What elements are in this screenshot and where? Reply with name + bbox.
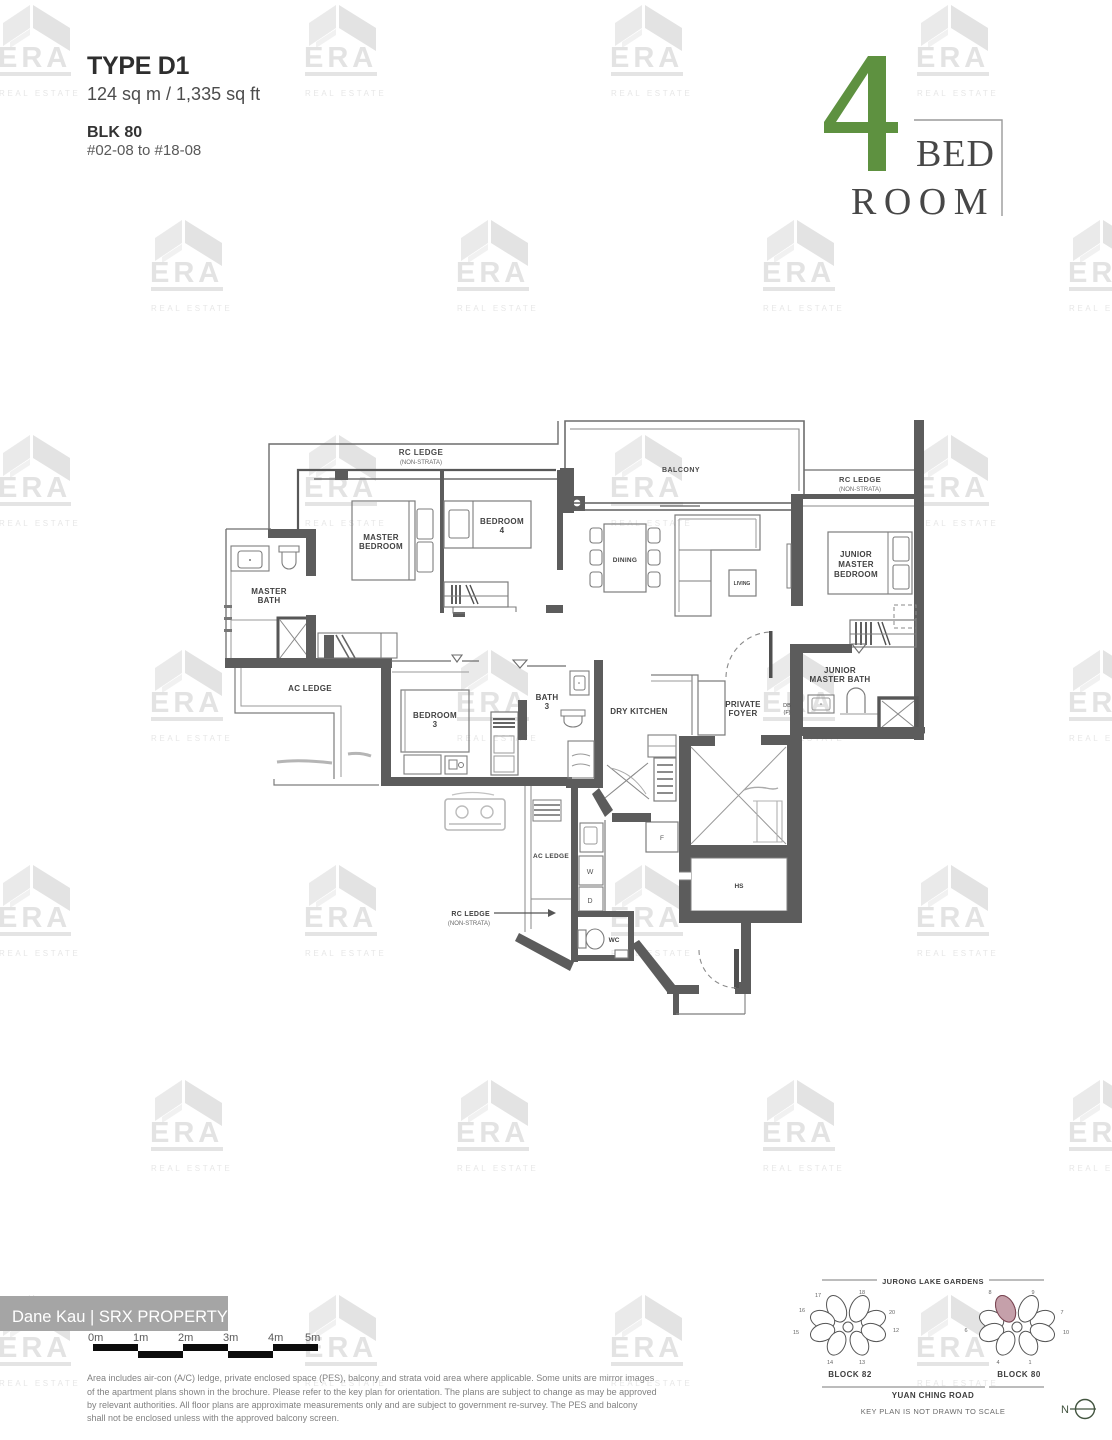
- svg-text:Area includes air-con (A/C) le: Area includes air-con (A/C) ledge, priva…: [87, 1373, 655, 1383]
- svg-text:BED: BED: [916, 133, 995, 175]
- svg-text:D: D: [587, 898, 592, 905]
- svg-text:124 sq m / 1,335 sq ft: 124 sq m / 1,335 sq ft: [87, 84, 260, 104]
- svg-text:ROOM: ROOM: [851, 181, 995, 223]
- svg-text:MASTER: MASTER: [251, 587, 287, 596]
- svg-text:(F): (F): [783, 710, 790, 716]
- svg-text:of the apartment plans shown i: of the apartment plans shown in the broc…: [87, 1387, 657, 1397]
- svg-text:HS: HS: [734, 883, 744, 890]
- svg-text:DINING: DINING: [613, 557, 638, 564]
- svg-text:KEY PLAN IS NOT DRAWN TO SCALE: KEY PLAN IS NOT DRAWN TO SCALE: [861, 1407, 1006, 1416]
- svg-text:JURONG LAKE GARDENS: JURONG LAKE GARDENS: [882, 1277, 984, 1286]
- svg-text:0m: 0m: [88, 1332, 103, 1344]
- svg-text:MASTER BATH: MASTER BATH: [810, 675, 871, 684]
- svg-text:BLOCK 82: BLOCK 82: [828, 1370, 872, 1379]
- svg-text:20: 20: [889, 1310, 895, 1316]
- svg-text:2m: 2m: [178, 1332, 193, 1344]
- svg-text:W: W: [587, 869, 594, 876]
- svg-text:DB: DB: [783, 703, 791, 709]
- svg-text:FOYER: FOYER: [728, 709, 757, 718]
- svg-text:1: 1: [1028, 1360, 1031, 1366]
- svg-text:by relevant authorities. All f: by relevant authorities. All floor plans…: [87, 1400, 638, 1410]
- svg-text:#02-08 to #18-08: #02-08 to #18-08: [87, 142, 201, 159]
- svg-text:PRIVATE: PRIVATE: [725, 700, 761, 709]
- svg-text:9: 9: [1031, 1290, 1034, 1296]
- svg-text:MASTER: MASTER: [838, 560, 874, 569]
- svg-text:1m: 1m: [133, 1332, 148, 1344]
- svg-text:3: 3: [545, 702, 550, 711]
- svg-text:RC LEDGE: RC LEDGE: [839, 475, 881, 484]
- svg-text:7: 7: [1060, 1310, 1063, 1316]
- svg-text:15: 15: [793, 1330, 799, 1336]
- svg-text:AC LEDGE: AC LEDGE: [533, 853, 569, 860]
- svg-text:BATH: BATH: [258, 596, 281, 605]
- svg-text:BALCONY: BALCONY: [662, 467, 700, 474]
- svg-text:N: N: [1061, 1404, 1069, 1416]
- svg-text:5m: 5m: [305, 1332, 320, 1344]
- svg-text:BEDROOM: BEDROOM: [413, 711, 457, 720]
- svg-text:(NON-STRATA): (NON-STRATA): [400, 460, 442, 466]
- svg-text:DRY KITCHEN: DRY KITCHEN: [610, 707, 668, 716]
- svg-text:12: 12: [893, 1328, 899, 1334]
- svg-text:LIVING: LIVING: [734, 581, 751, 587]
- svg-text:JUNIOR: JUNIOR: [824, 666, 856, 675]
- svg-text:BLOCK 80: BLOCK 80: [997, 1370, 1041, 1379]
- svg-text:BLK 80: BLK 80: [87, 124, 142, 141]
- svg-text:TYPE D1: TYPE D1: [87, 52, 189, 80]
- svg-text:18: 18: [859, 1290, 865, 1296]
- svg-text:17: 17: [815, 1293, 821, 1299]
- svg-text:RC LEDGE: RC LEDGE: [451, 911, 490, 918]
- svg-text:3m: 3m: [223, 1332, 238, 1344]
- svg-text:16: 16: [799, 1308, 805, 1314]
- svg-text:4: 4: [500, 526, 505, 535]
- svg-text:RC LEDGE: RC LEDGE: [399, 448, 444, 457]
- svg-text:WC: WC: [609, 937, 620, 944]
- svg-text:6: 6: [964, 1328, 967, 1334]
- svg-text:4: 4: [996, 1360, 999, 1366]
- svg-text:8: 8: [988, 1290, 991, 1296]
- svg-text:BEDROOM: BEDROOM: [359, 542, 403, 551]
- svg-text:10: 10: [1063, 1330, 1069, 1336]
- svg-text:(NON-STRATA): (NON-STRATA): [839, 487, 881, 493]
- svg-text:13: 13: [859, 1360, 865, 1366]
- svg-text:JUNIOR: JUNIOR: [840, 550, 872, 559]
- svg-text:14: 14: [827, 1360, 833, 1366]
- svg-text:F: F: [660, 835, 664, 842]
- svg-text:(NON-STRATA): (NON-STRATA): [448, 921, 490, 927]
- svg-text:3: 3: [433, 720, 438, 729]
- svg-text:BATH: BATH: [536, 693, 559, 702]
- svg-text:MASTER: MASTER: [363, 533, 399, 542]
- svg-text:AC LEDGE: AC LEDGE: [288, 684, 332, 693]
- svg-text:Dane Kau | SRX PROPERTY: Dane Kau | SRX PROPERTY: [12, 1308, 228, 1326]
- svg-text:4m: 4m: [268, 1332, 283, 1344]
- svg-text:shall not be enclosed unless w: shall not be enclosed unless with the ap…: [87, 1413, 339, 1423]
- svg-text:BEDROOM: BEDROOM: [834, 570, 878, 579]
- svg-text:BEDROOM: BEDROOM: [480, 517, 524, 526]
- svg-text:YUAN CHING ROAD: YUAN CHING ROAD: [892, 1391, 974, 1400]
